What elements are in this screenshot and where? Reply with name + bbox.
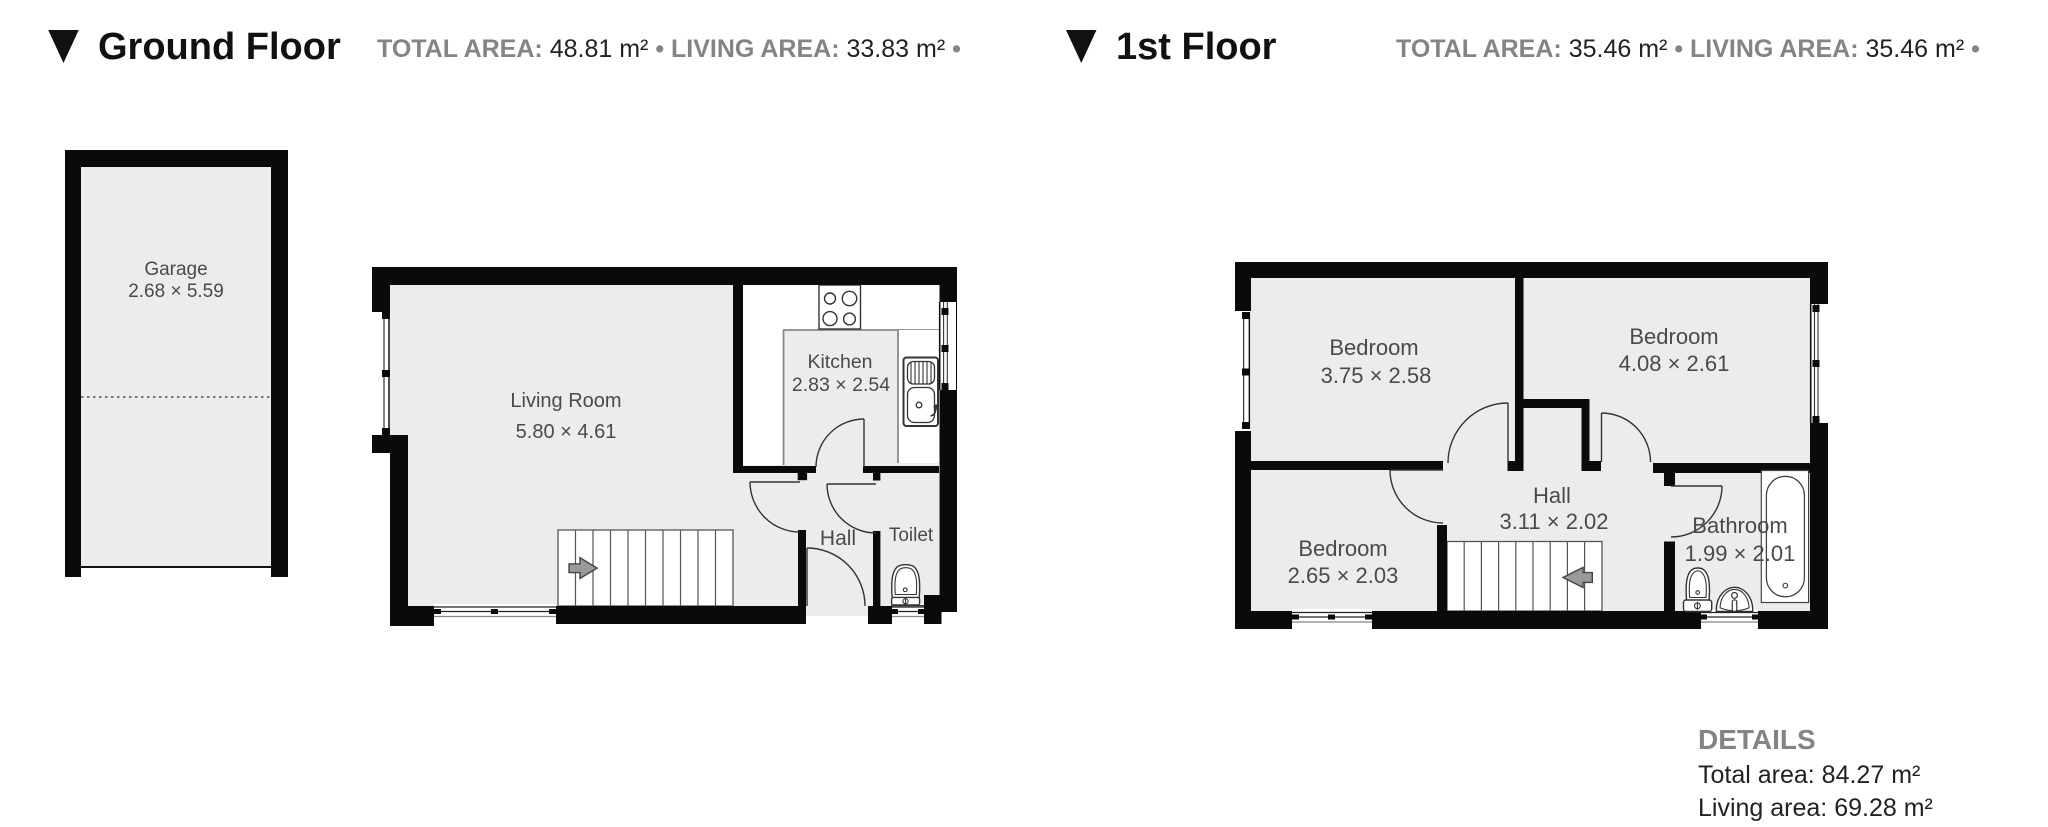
svg-text:5.80 × 4.61: 5.80 × 4.61 (516, 421, 617, 443)
svg-text:4.08 × 2.61: 4.08 × 2.61 (1619, 351, 1730, 376)
svg-text:DETAILS: DETAILS (1698, 724, 1816, 755)
svg-text:Ground Floor: Ground Floor (98, 26, 341, 68)
svg-text:Bedroom: Bedroom (1629, 324, 1718, 349)
svg-text:Bedroom: Bedroom (1329, 335, 1418, 360)
svg-text:Toilet: Toilet (889, 525, 934, 546)
svg-text:Garage: Garage (144, 259, 207, 280)
svg-text:1st Floor: 1st Floor (1116, 26, 1277, 68)
svg-text:2.65 × 2.03: 2.65 × 2.03 (1288, 563, 1399, 588)
svg-text:3.11 × 2.02: 3.11 × 2.02 (1499, 509, 1608, 534)
svg-text:Bathroom: Bathroom (1692, 513, 1787, 538)
svg-text:Living area: 69.28 m²: Living area: 69.28 m² (1698, 794, 1933, 822)
svg-text:Total area: 84.27 m²: Total area: 84.27 m² (1698, 761, 1920, 789)
svg-text:2.68 × 5.59: 2.68 × 5.59 (128, 281, 224, 302)
svg-text:Kitchen: Kitchen (807, 351, 872, 373)
svg-text:1.99 × 2.01: 1.99 × 2.01 (1685, 541, 1796, 566)
svg-text:3.75 × 2.58: 3.75 × 2.58 (1321, 363, 1432, 388)
svg-text:Living Room: Living Room (510, 390, 621, 412)
svg-text:Hall: Hall (820, 527, 856, 550)
svg-text:TOTAL AREA: 35.46 m² • LIVING: TOTAL AREA: 35.46 m² • LIVING AREA: 35.4… (1396, 35, 1980, 63)
svg-text:2.83 × 2.54: 2.83 × 2.54 (792, 374, 890, 396)
svg-text:TOTAL AREA: 48.81 m² • LIVING: TOTAL AREA: 48.81 m² • LIVING AREA: 33.8… (377, 35, 961, 63)
svg-text:Bedroom: Bedroom (1298, 536, 1387, 561)
svg-text:Hall: Hall (1533, 483, 1571, 508)
